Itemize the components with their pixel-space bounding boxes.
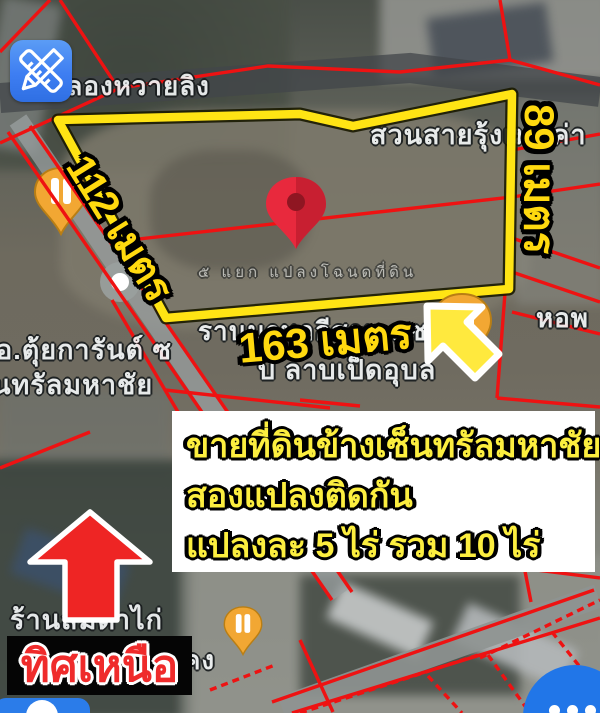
- bottom-left-button[interactable]: [0, 698, 90, 713]
- north-arrow: [30, 512, 150, 620]
- satellite-map[interactable]: คลองหวายลิง สวนสายรุ้งเมคค่า ๕ แยก แปลงโ…: [0, 0, 600, 713]
- sale-info-box: ขายที่ดินข้างเซ็นทรัลมหาชัย สองแปลงติดกั…: [172, 411, 595, 572]
- sale-info-line-2: สองแปลงติดกัน: [186, 471, 581, 521]
- edit-measure-button[interactable]: [10, 40, 72, 102]
- sale-info-line-1: ขายที่ดินข้างเซ็นทรัลมหาชัย: [186, 421, 581, 471]
- poi-pin-bottom[interactable]: [224, 607, 261, 655]
- north-label-box: ทิศเหนือ: [7, 636, 192, 695]
- location-pin[interactable]: [266, 177, 326, 249]
- sale-info-line-3: แปลงละ 5 ไร่ รวม 10 ไร่: [186, 521, 581, 571]
- pencil-ruler-icon: [10, 40, 72, 102]
- north-label: ทิศเหนือ: [21, 631, 178, 701]
- measure-right: 89 เมตร: [506, 104, 572, 254]
- bottom-left-button-icon: [26, 700, 58, 713]
